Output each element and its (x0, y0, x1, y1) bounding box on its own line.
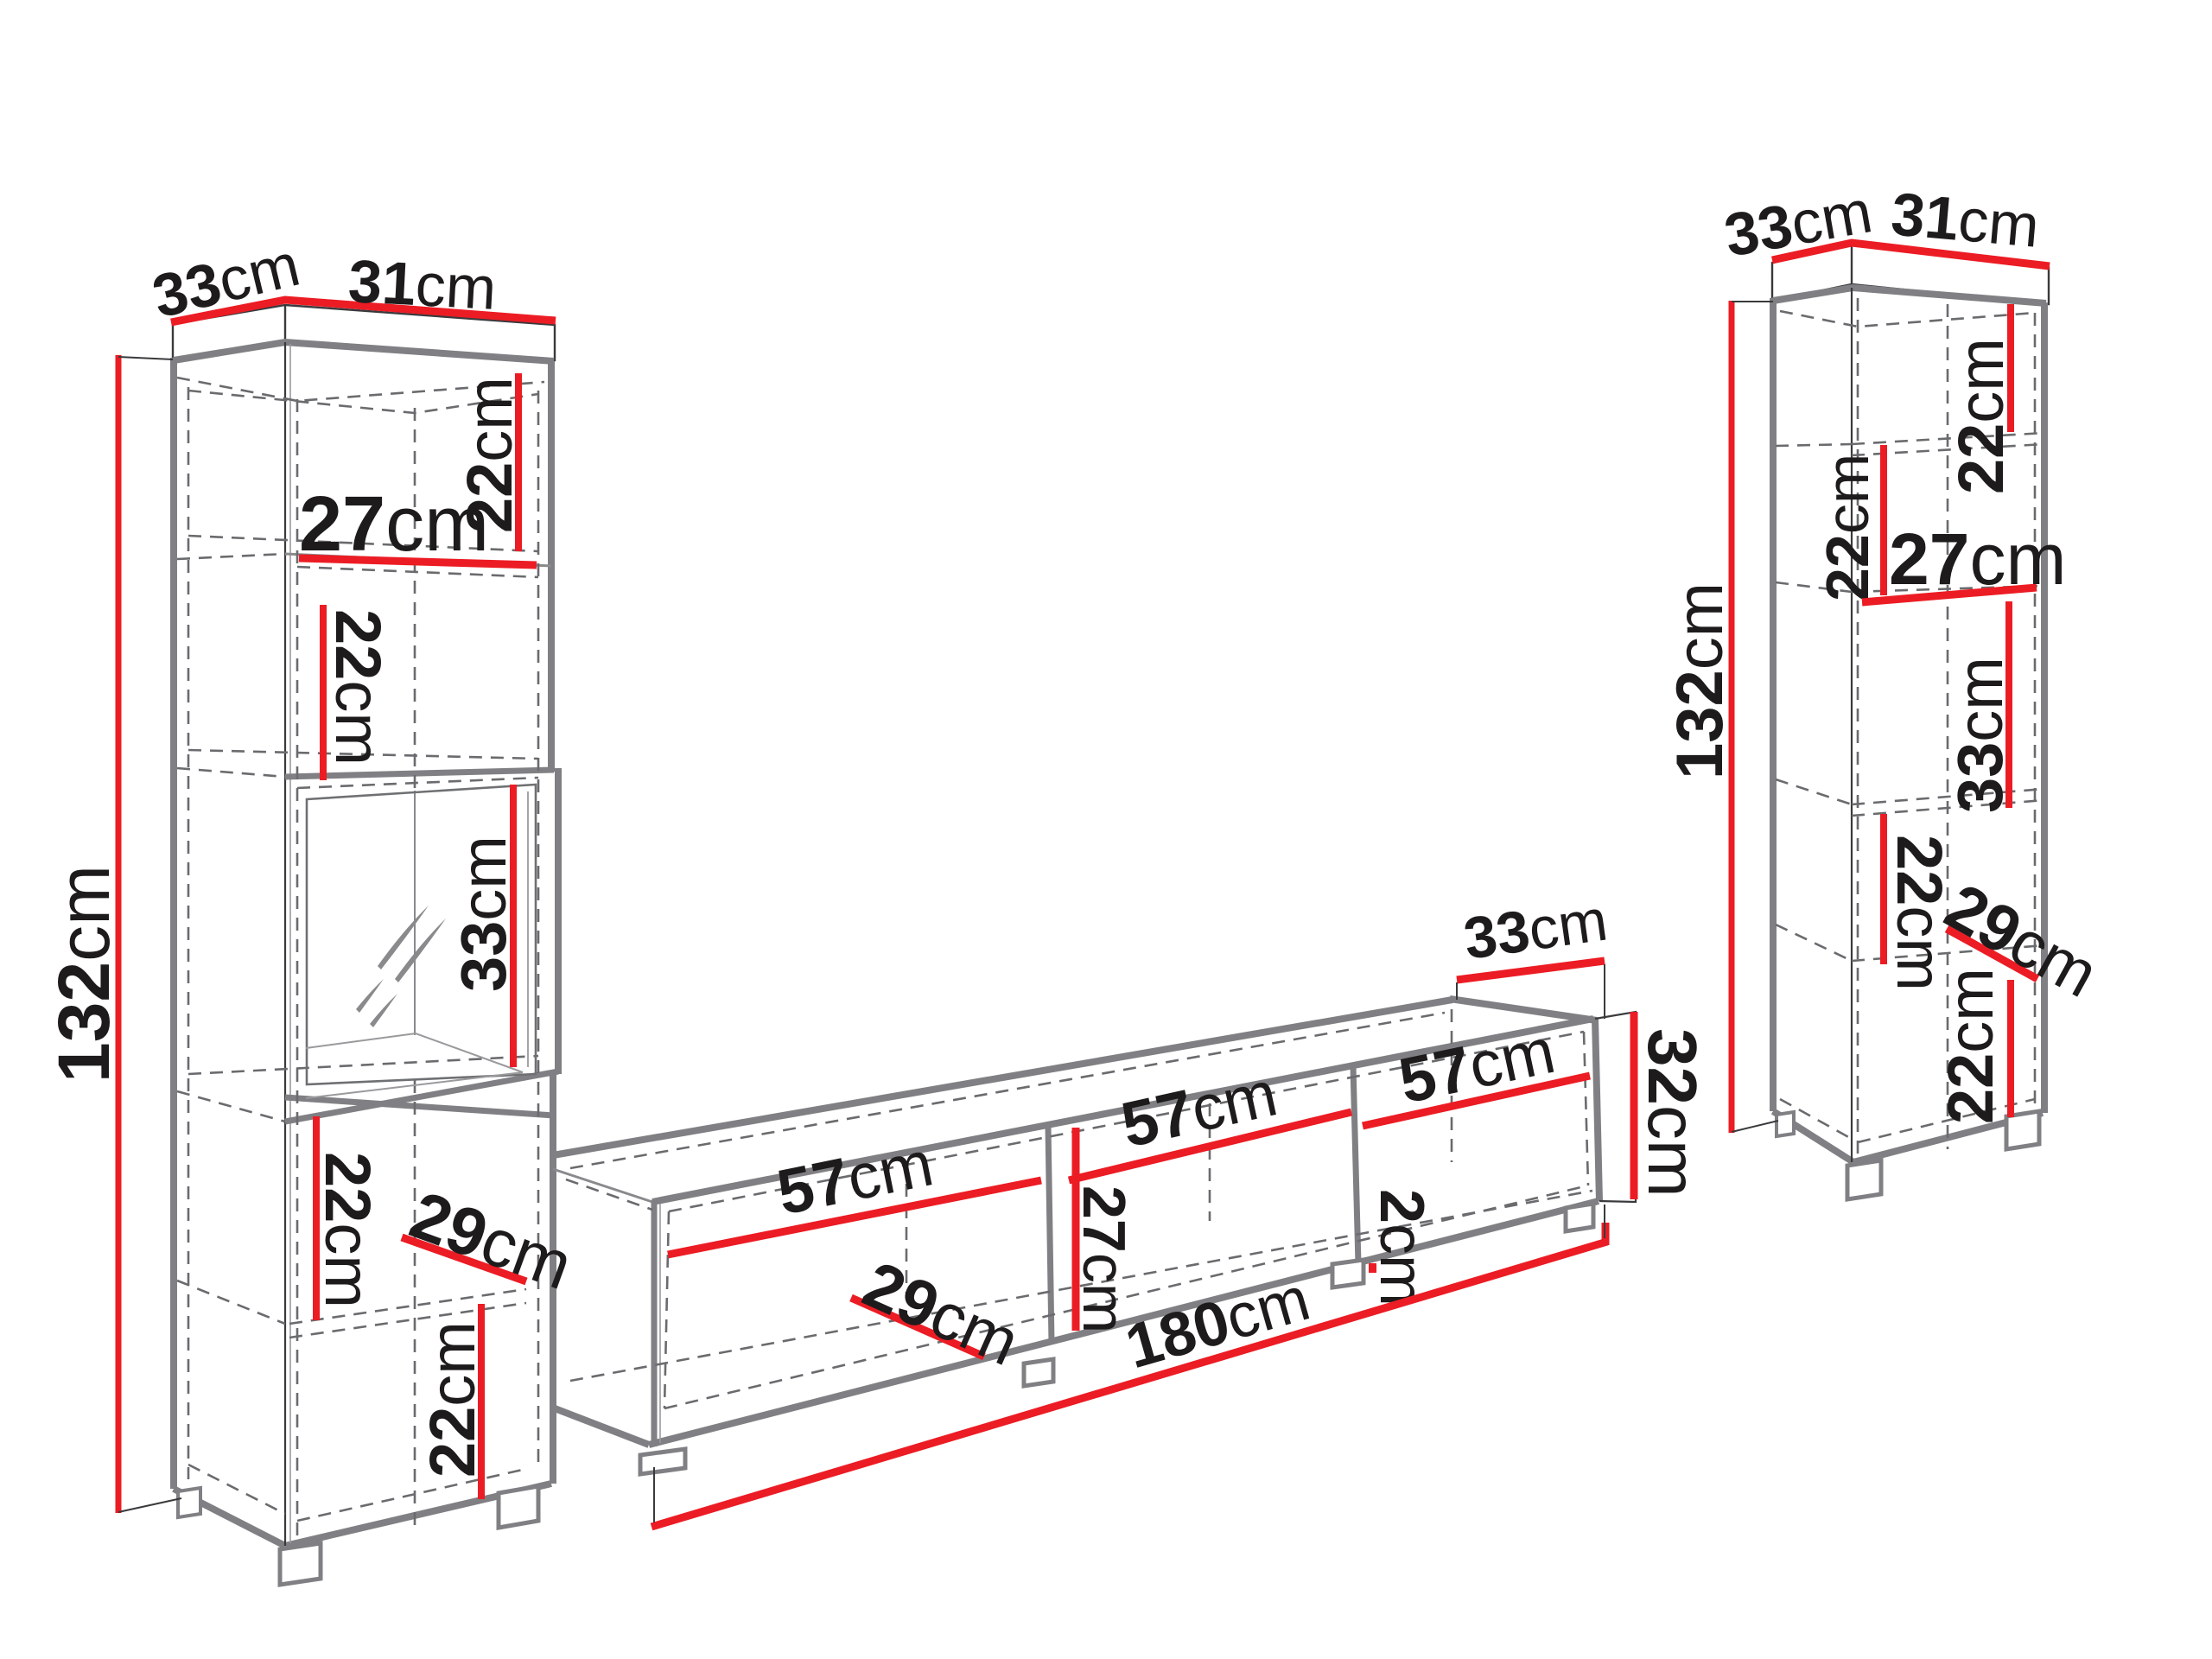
svg-text:2cm: 2cm (1367, 1189, 1436, 1306)
svg-text:57cm: 57cm (772, 1127, 939, 1228)
svg-text:27cm: 27cm (1889, 518, 2066, 600)
svg-text:57cm: 57cm (1115, 1057, 1283, 1160)
svg-text:57cm: 57cm (1393, 1014, 1560, 1117)
svg-text:132cm: 132cm (43, 865, 124, 1083)
svg-text:22cm: 22cm (1945, 338, 2017, 494)
svg-text:22cm: 22cm (1935, 968, 2006, 1124)
svg-text:22cm: 22cm (1814, 454, 1881, 601)
svg-text:22cm: 22cm (322, 609, 394, 766)
svg-text:32cm: 32cm (1634, 1028, 1711, 1198)
svg-text:33cm: 33cm (448, 836, 519, 992)
svg-text:31cm: 31cm (346, 247, 498, 322)
svg-text:33cm: 33cm (1944, 657, 2016, 813)
svg-text:22cm: 22cm (312, 1152, 384, 1308)
svg-text:31cm: 31cm (1889, 180, 2042, 260)
svg-text:27cm: 27cm (299, 481, 489, 568)
svg-text:22cm: 22cm (416, 1321, 488, 1478)
svg-text:27cm: 27cm (1071, 1185, 1138, 1333)
svg-text:180cm: 180cm (1118, 1264, 1317, 1382)
svg-text:33cm: 33cm (1719, 177, 1877, 270)
svg-text:29cm: 29cm (853, 1248, 1029, 1380)
svg-text:132cm: 132cm (1663, 582, 1737, 779)
